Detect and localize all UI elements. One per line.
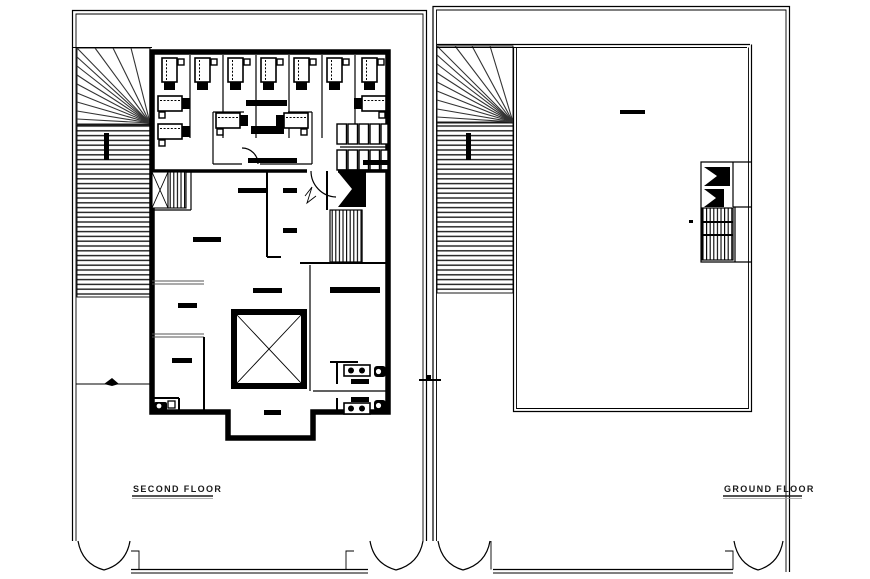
counter-icon xyxy=(248,158,297,163)
staircase-left xyxy=(152,171,191,210)
ramp-fan-hatch xyxy=(437,46,513,293)
workstation-desk-icon xyxy=(195,58,217,90)
workstation-desk-icon xyxy=(327,58,349,90)
stair-tread-hatch xyxy=(77,125,150,297)
wall-stub xyxy=(620,110,645,114)
staircase xyxy=(689,162,751,262)
stair-tread-hatch xyxy=(437,123,513,293)
workstation-desk-icon xyxy=(261,58,283,90)
entrance-door-arc xyxy=(438,541,783,570)
toilet-icon xyxy=(374,366,386,377)
second-floor-plan: SECOND FLOOR xyxy=(72,11,441,574)
elevator-shaft xyxy=(234,312,304,386)
stair-direction-arrow xyxy=(704,167,730,186)
stair-direction-arrow xyxy=(338,172,366,207)
floor-plan-drawing: SECOND FLOOR xyxy=(0,0,870,579)
floor-label-second: SECOND FLOOR xyxy=(133,484,222,494)
workstation-desk-icon xyxy=(158,124,190,146)
workstation-desk-icon xyxy=(294,58,316,90)
toilet-icon xyxy=(374,400,386,411)
table-icon xyxy=(251,126,284,134)
sink-counter-icon xyxy=(344,403,370,414)
restrooms xyxy=(313,362,388,414)
table-icon xyxy=(246,100,287,106)
cad-floor-plan-canvas: SECOND FLOOR xyxy=(0,0,870,579)
door-swing-arc xyxy=(311,171,336,197)
staircase-right xyxy=(305,171,366,262)
floor-label-ground: GROUND FLOOR xyxy=(724,484,815,494)
workstation-desk-icon xyxy=(228,58,250,90)
stair-direction-arrow xyxy=(704,189,724,207)
break-line xyxy=(305,187,316,203)
conference-room xyxy=(213,100,312,164)
workstation-desk-icon xyxy=(362,58,384,90)
ramp-fan-hatch xyxy=(72,48,152,298)
sink-counter-icon xyxy=(344,365,370,376)
ground-floor-plan: GROUND FLOOR xyxy=(433,7,815,574)
workstation-desk-icon xyxy=(158,96,190,118)
entrance-door-arc xyxy=(78,541,423,570)
workstation-desk-icon xyxy=(162,58,184,90)
workstation-desk-icon xyxy=(216,113,248,135)
workstation-desk-icon xyxy=(354,96,386,118)
